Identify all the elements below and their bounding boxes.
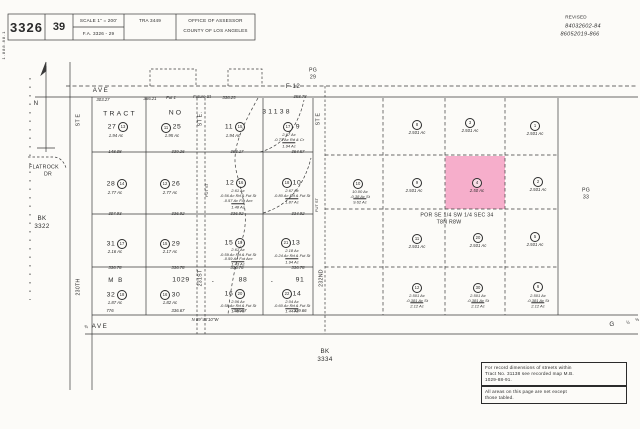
area-lot-25: 1.95 Ac	[165, 134, 179, 138]
area-lot-31: 2.16 Ac	[108, 250, 122, 254]
north-label: N	[34, 101, 39, 107]
office-line2: COUNTY OF LOS ANGELES	[176, 24, 255, 37]
section-title: T8N R8W	[437, 220, 462, 225]
north-arrow-icon	[37, 62, 55, 152]
apn-circle-6: 6	[533, 282, 543, 292]
apn-circle-3: 3	[465, 118, 475, 128]
pg-29-ref: PG	[309, 68, 317, 73]
apn-circle-13: 13	[118, 122, 128, 132]
apn-circle-18: 18	[282, 178, 292, 188]
lot-31: 31	[107, 242, 116, 249]
dim-row: 334.92	[291, 212, 304, 216]
street-230th-st-e: ST E	[76, 114, 81, 127]
avenue-g-label: AVE	[92, 324, 108, 330]
bk-3334-ref: BK	[320, 349, 329, 355]
apn-circle-30: 30	[473, 283, 483, 293]
area-parcel: 2.501 Ac	[470, 244, 487, 248]
fut-st-note: FUT ST	[315, 198, 319, 212]
lot-32: 32	[107, 293, 116, 300]
apn-circle-16: 16	[160, 290, 170, 300]
lot-11: 11	[225, 125, 233, 132]
area-lot-30: 1.82 Ac	[163, 301, 177, 305]
map-book-ref: 1029	[172, 278, 190, 285]
area-lot-28: 2.77 Ac	[108, 191, 122, 195]
apn-circle-14: 14	[117, 179, 127, 189]
street-230th-st-e: 230TH	[76, 278, 81, 295]
avenue-g-name: G	[609, 322, 614, 328]
section-title: POR SE 1/4 SW 1/4 SEC 34	[420, 213, 493, 218]
lot-26: 26	[172, 182, 181, 189]
net-areas-note: All areas on this page are net except th…	[481, 386, 627, 404]
note-line: 1029-88-91.	[485, 377, 623, 383]
dim-row: 363.17	[230, 150, 243, 154]
lot-28: 28	[107, 182, 116, 189]
section-mark: ½	[626, 321, 630, 325]
bk-3322-ref: BK	[37, 216, 46, 222]
section-mark: ¾	[84, 325, 88, 329]
avenue-f12-name: F-12	[286, 84, 300, 90]
revision-entry: 86052019-866	[560, 32, 599, 38]
area-lot-11: 1.94 Ac	[226, 134, 240, 138]
pg-33-ref: PG	[582, 188, 590, 193]
revision-entry: 84032602-84	[565, 24, 601, 30]
map-book-ref: M B	[108, 278, 124, 284]
apn-circle-20: 20	[235, 289, 245, 299]
apn-circle-2: 2	[533, 177, 543, 187]
street-232nd-st-e: ST E	[316, 113, 321, 126]
apn-circle-20: 20	[473, 233, 483, 243]
lot-9: 9	[296, 125, 300, 132]
pg-29-ref: 29	[310, 75, 316, 80]
area-parcel: 2.501 Ac	[462, 129, 479, 133]
lot-12: 12	[226, 181, 235, 188]
fut-st-note: FUT ST	[205, 183, 209, 197]
tract-title: TRACT	[103, 112, 137, 119]
apn-circle-21: 21	[281, 238, 291, 248]
book-number: 3326	[8, 14, 45, 40]
dim-top: Fut 1	[166, 96, 176, 100]
lot-30: 30	[172, 293, 181, 300]
apn-circle-18: 18	[117, 290, 127, 300]
tra-label: TRA 3449	[124, 14, 176, 26]
scale-label: SCALE 1" = 200'	[73, 14, 124, 27]
dim-bottom: 339.66	[293, 309, 306, 313]
area-parcel: 2.12 Ac	[471, 302, 484, 308]
area-parcel: 2.12 Ac	[410, 302, 423, 308]
area-lot-29: 2.17 Ac	[163, 250, 177, 254]
dim-bottom: 336.67	[171, 309, 184, 313]
lot-10: 10	[293, 181, 302, 188]
area-parcel-highlighted: 2.50 Ac	[470, 189, 484, 193]
dim-top: 358.78	[293, 95, 306, 99]
assessor-map-page: 3326 39 SCALE 1" = 200' F.A. 3326 - 29 O…	[0, 0, 640, 429]
dim-row: 336.92	[171, 212, 184, 216]
dim-top: 338.25	[222, 96, 235, 100]
street-232nd-st-e: 232ND	[319, 269, 324, 287]
lot-16: 16	[225, 292, 234, 299]
lot-27: 27	[108, 125, 117, 132]
apn-circle-16: 16	[236, 178, 246, 188]
map-book-ref: -	[271, 279, 273, 285]
map-book-ref: 88	[239, 278, 248, 285]
bk-3322-ref: 3322	[34, 224, 49, 230]
dim-row: 307.93	[108, 212, 121, 216]
lot-14: 14	[293, 292, 302, 299]
bearing-bottom: N 89°45'10"W	[192, 318, 219, 322]
apn-circle-17: 17	[283, 122, 293, 132]
area-lot-32: 1.87 Ac	[108, 301, 122, 305]
apn-circle-1: 1	[530, 121, 540, 131]
area-parcel-10s: 9.62 Ac	[353, 198, 366, 204]
street-flatrock-dr: DR	[44, 172, 52, 177]
tract-title: NO	[169, 111, 184, 118]
area-lot-10: 1.87 Ac	[285, 198, 298, 204]
lot-13: 13	[292, 241, 301, 248]
apn-circle-22: 22	[282, 289, 292, 299]
dim-bottom: 336.67	[233, 309, 246, 313]
apn-circle-10: 10	[353, 179, 363, 189]
street-flatrock-dr: FLATROCK	[29, 165, 59, 170]
apn-circle-17: 17	[117, 239, 127, 249]
pg-33-ref: 33	[583, 195, 589, 200]
dim-top: Future St	[193, 95, 211, 99]
margin-note: 1.888.88.1	[2, 31, 6, 60]
note-line: those tabled.	[485, 395, 623, 401]
dim-top: 366.21	[143, 97, 156, 101]
record-dimensions-note: For record dimensions of streets within …	[481, 362, 627, 386]
map-book-ref: -	[212, 279, 214, 285]
apn-circle-11: 11	[161, 123, 171, 133]
fa-label: F.A. 3326 - 29	[73, 27, 124, 40]
area-lot-26: 2.77 Ac	[163, 191, 177, 195]
dim-bottom: 776	[106, 309, 113, 313]
dim-top: 303.27	[96, 98, 109, 102]
dim-row: 336.78	[291, 266, 304, 270]
apn-circle-9: 9	[412, 178, 422, 188]
apn-circle-4-highlighted: 4	[472, 178, 482, 188]
dim-row: 336.78	[171, 266, 184, 270]
area-lot-27: 1.94 Ac	[109, 134, 123, 138]
apn-circle-19: 19	[235, 238, 245, 248]
area-lot-13: 1.94 Ac	[285, 258, 298, 264]
section-mark: ⅓	[635, 318, 639, 322]
area-parcel: 2.12 Ac	[531, 302, 544, 308]
dim-row: 336.92	[230, 212, 243, 216]
street-231st-st-e: ST E.	[198, 112, 203, 126]
area-lot-9: 1.94 Ac	[282, 142, 295, 148]
dim-row: 339.26	[171, 150, 184, 154]
apn-circle-11: 11	[412, 234, 422, 244]
area-parcel: 2.501 Ac	[527, 243, 544, 247]
bk-3334-ref: 3334	[317, 357, 332, 363]
dim-row: 336.78	[230, 266, 243, 270]
apn-circle-12: 12	[412, 283, 422, 293]
apn-circle-15: 15	[160, 239, 170, 249]
area-parcel: 2.501 Ac	[530, 188, 547, 192]
tract-title: 31138	[262, 110, 291, 117]
apn-circle-12: 12	[160, 179, 170, 189]
page-number: 39	[45, 14, 73, 40]
dim-row: 336.78	[108, 266, 121, 270]
apn-circle-8: 8	[412, 120, 422, 130]
street-231st-st-e: 231ST	[198, 270, 203, 287]
area-lot-12: 1.48 Ac	[231, 203, 244, 209]
dim-row: 364.57	[291, 150, 304, 154]
area-parcel: 2.501 Ac	[409, 245, 426, 249]
apn-circle-15: 15	[235, 122, 245, 132]
dim-row: 148.08	[108, 150, 121, 154]
area-parcel: 2.501 Ac	[406, 189, 423, 193]
map-book-ref: 91	[296, 278, 305, 285]
lot-25: 25	[173, 125, 182, 132]
revised-label: REVISED	[565, 16, 587, 21]
avenue-f12-label: AVE	[93, 88, 109, 94]
apn-circle-5: 5	[530, 232, 540, 242]
lot-29: 29	[172, 242, 181, 249]
area-parcel: 2.501 Ac	[527, 132, 544, 136]
area-parcel: 2.501 Ac	[409, 131, 426, 135]
